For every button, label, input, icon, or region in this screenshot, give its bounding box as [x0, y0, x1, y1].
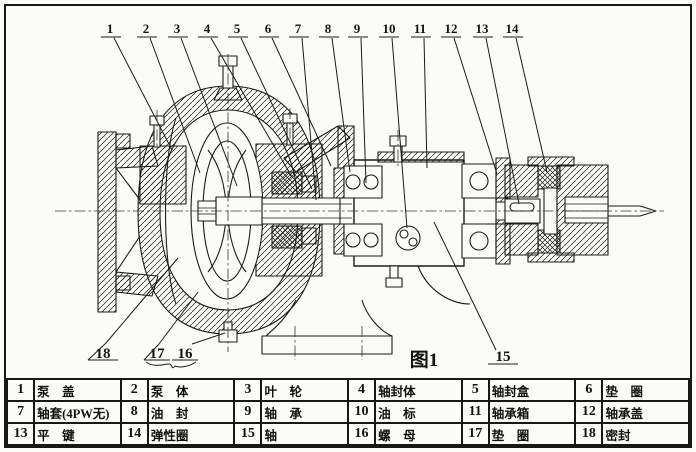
callout-1: 1: [107, 21, 114, 36]
callout-11: 11: [414, 21, 426, 36]
callout-17: 17: [150, 346, 166, 362]
part-name: 平 键: [34, 423, 121, 445]
callout-2: 2: [143, 21, 150, 36]
callout-5: 5: [234, 21, 241, 36]
part-no: 6: [575, 379, 602, 401]
part-name: 轴套(4PW无): [34, 401, 121, 423]
callout-9: 9: [354, 21, 361, 36]
pump-cross-section-drawing: 1 2 3 4 5 6 7 8 9 10 11 12 13 14 18 17 1…: [0, 0, 696, 378]
callout-7: 7: [295, 21, 302, 36]
part-name: 叶 轮: [261, 379, 348, 401]
callout-4: 4: [204, 21, 211, 36]
callout-3: 3: [174, 21, 181, 36]
part-no: 10: [348, 401, 375, 423]
part-name: 泵 体: [148, 379, 235, 401]
oil-sight-glass: [396, 226, 420, 250]
part-name: 油 封: [148, 401, 235, 423]
part-no: 15: [234, 423, 261, 445]
part-no: 18: [575, 423, 602, 445]
part-name: 泵 盖: [34, 379, 121, 401]
part-name: 轴承盖: [602, 401, 689, 423]
callout-18: 18: [96, 346, 111, 362]
callout-13: 13: [476, 21, 490, 36]
part-no: 7: [7, 401, 34, 423]
part-no: 2: [121, 379, 148, 401]
part-no: 1: [7, 379, 34, 401]
callout-15: 15: [496, 349, 511, 365]
part-name: 轴封体: [375, 379, 462, 401]
drain-bolt: [390, 266, 398, 278]
part-no: 13: [7, 423, 34, 445]
callout-8: 8: [325, 21, 332, 36]
part-no: 11: [462, 401, 489, 423]
part-name: 弹性圈: [148, 423, 235, 445]
callout-10: 10: [383, 21, 396, 36]
part-name: 垫 圈: [602, 379, 689, 401]
part-name: 轴封盒: [489, 379, 576, 401]
part-no: 8: [121, 401, 148, 423]
part-no: 3: [234, 379, 261, 401]
figure-caption: 图1: [410, 349, 439, 371]
part-no: 5: [462, 379, 489, 401]
suction-flange: [98, 132, 116, 312]
part-no: 14: [121, 423, 148, 445]
part-no: 16: [348, 423, 375, 445]
part-name: 密封: [602, 423, 689, 445]
table-row: 7 轴套(4PW无) 8 油 封 9 轴 承 10 油 标 11 轴承箱 12 …: [7, 401, 689, 423]
part-name: 轴承箱: [489, 401, 576, 423]
packing-seal: [272, 172, 302, 194]
part-no: 4: [348, 379, 375, 401]
part-no: 17: [462, 423, 489, 445]
part-name: 螺 母: [375, 423, 462, 445]
part-no: 12: [575, 401, 602, 423]
callout-14: 14: [506, 21, 520, 36]
pump-body-group: [98, 56, 656, 354]
parts-table: 1 泵 盖 2 泵 体 3 叶 轮 4 轴封体 5 轴封盒 6 垫 圈 7 轴套…: [6, 378, 690, 446]
callout-6: 6: [265, 21, 272, 36]
callout-12: 12: [445, 21, 458, 36]
table-row: 1 泵 盖 2 泵 体 3 叶 轮 4 轴封体 5 轴封盒 6 垫 圈: [7, 379, 689, 401]
callout-16: 16: [178, 346, 194, 362]
flat-key: [510, 203, 534, 211]
table-row: 13 平 键 14 弹性圈 15 轴 16 螺 母 17 垫 圈 18 密封: [7, 423, 689, 445]
part-name: 轴 承: [261, 401, 348, 423]
part-name: 轴: [261, 423, 348, 445]
part-name: 垫 圈: [489, 423, 576, 445]
part-no: 9: [234, 401, 261, 423]
bearing-right: [462, 164, 496, 198]
part-name: 油 标: [375, 401, 462, 423]
